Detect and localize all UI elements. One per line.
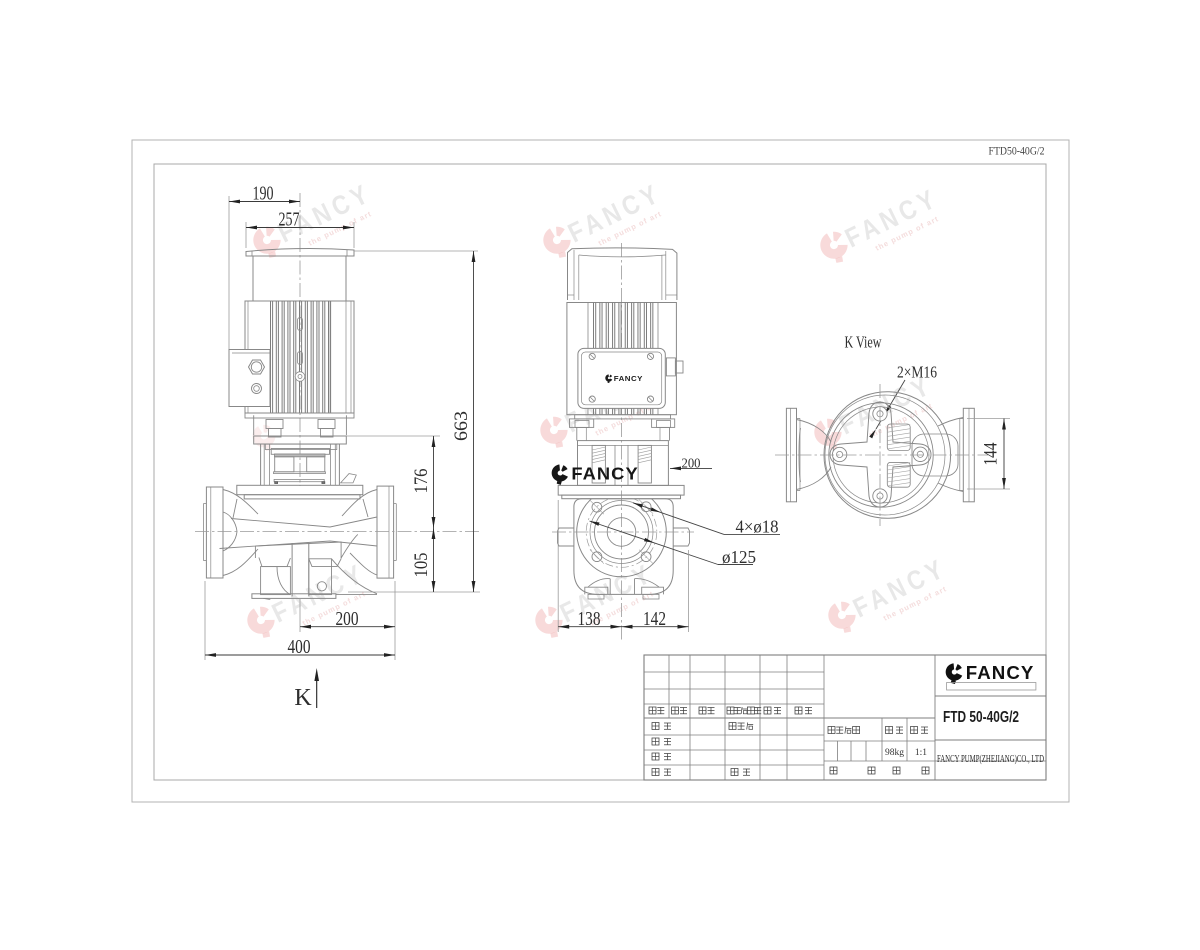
svg-text:144: 144: [981, 442, 1002, 465]
svg-text:FANCY PUMP(ZHEJIANG)CO., LTD: FANCY PUMP(ZHEJIANG)CO., LTD: [937, 754, 1044, 765]
svg-text:FTD 50-40G/2: FTD 50-40G/2: [943, 709, 1019, 726]
svg-text:400: 400: [288, 636, 311, 658]
svg-text:138: 138: [578, 608, 601, 630]
svg-text:142: 142: [643, 608, 666, 630]
svg-text:2×M16: 2×M16: [897, 363, 937, 382]
svg-text:K: K: [294, 685, 312, 711]
svg-text:663: 663: [451, 411, 472, 441]
svg-text:K View: K View: [845, 333, 883, 352]
svg-text:176: 176: [411, 469, 432, 494]
svg-text:257: 257: [279, 209, 300, 231]
svg-text:FTD50-40G/2: FTD50-40G/2: [989, 146, 1045, 158]
svg-text:98kg: 98kg: [885, 748, 904, 758]
svg-text:ø125: ø125: [722, 547, 756, 567]
svg-text:200: 200: [682, 456, 701, 471]
svg-text:1:1: 1:1: [915, 748, 927, 758]
svg-text:105: 105: [411, 553, 432, 578]
svg-text:190: 190: [253, 183, 274, 205]
svg-text:4×ø18: 4×ø18: [736, 517, 779, 537]
svg-text:200: 200: [336, 608, 359, 630]
